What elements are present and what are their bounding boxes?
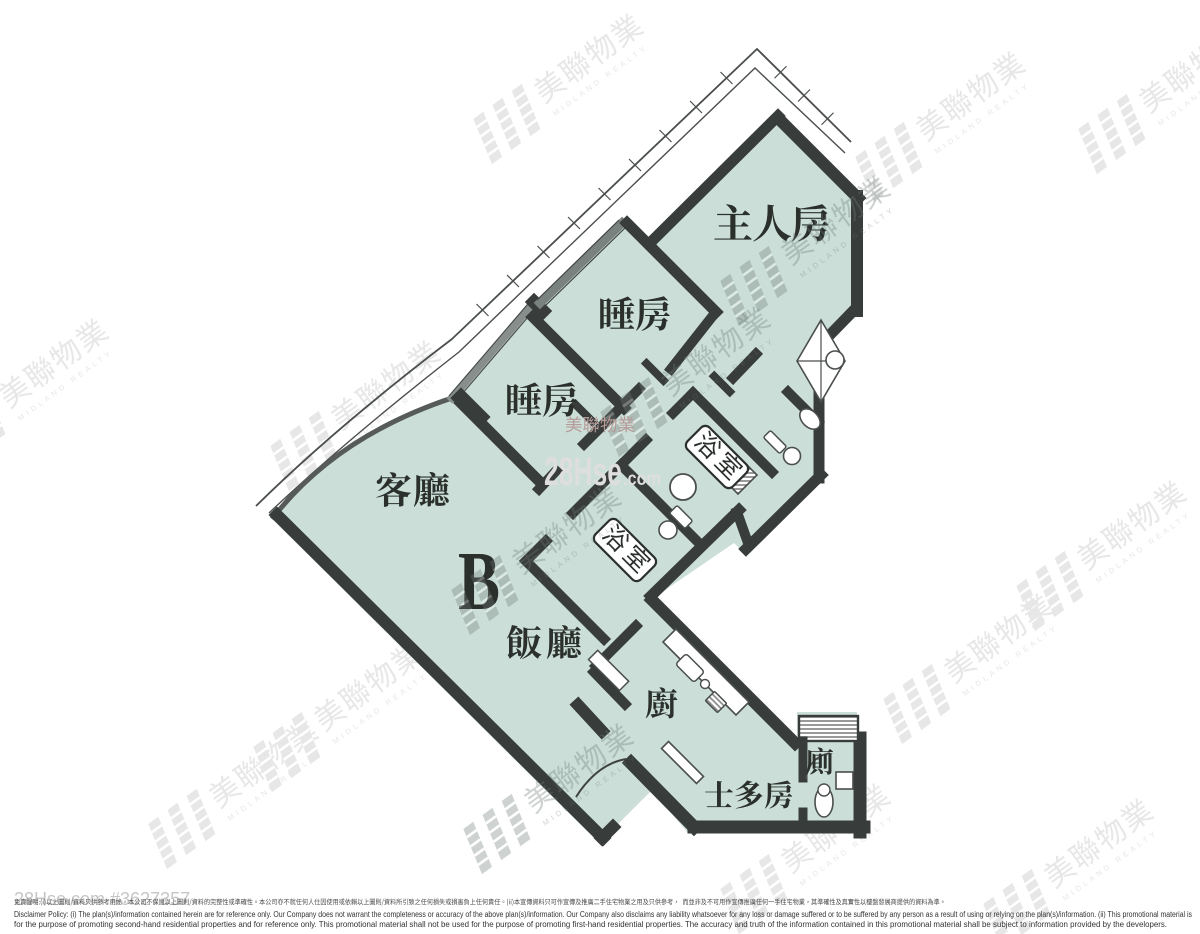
svg-text:28Hse: 28Hse bbox=[544, 450, 622, 494]
svg-text:for the purpose of promoting s: for the purpose of promoting second-hand… bbox=[14, 920, 1167, 929]
svg-text:Disclaimer Policy: (i) The pla: Disclaimer Policy: (i) The plan(s)/infor… bbox=[14, 910, 1192, 919]
svg-text:.com: .com bbox=[623, 469, 661, 490]
